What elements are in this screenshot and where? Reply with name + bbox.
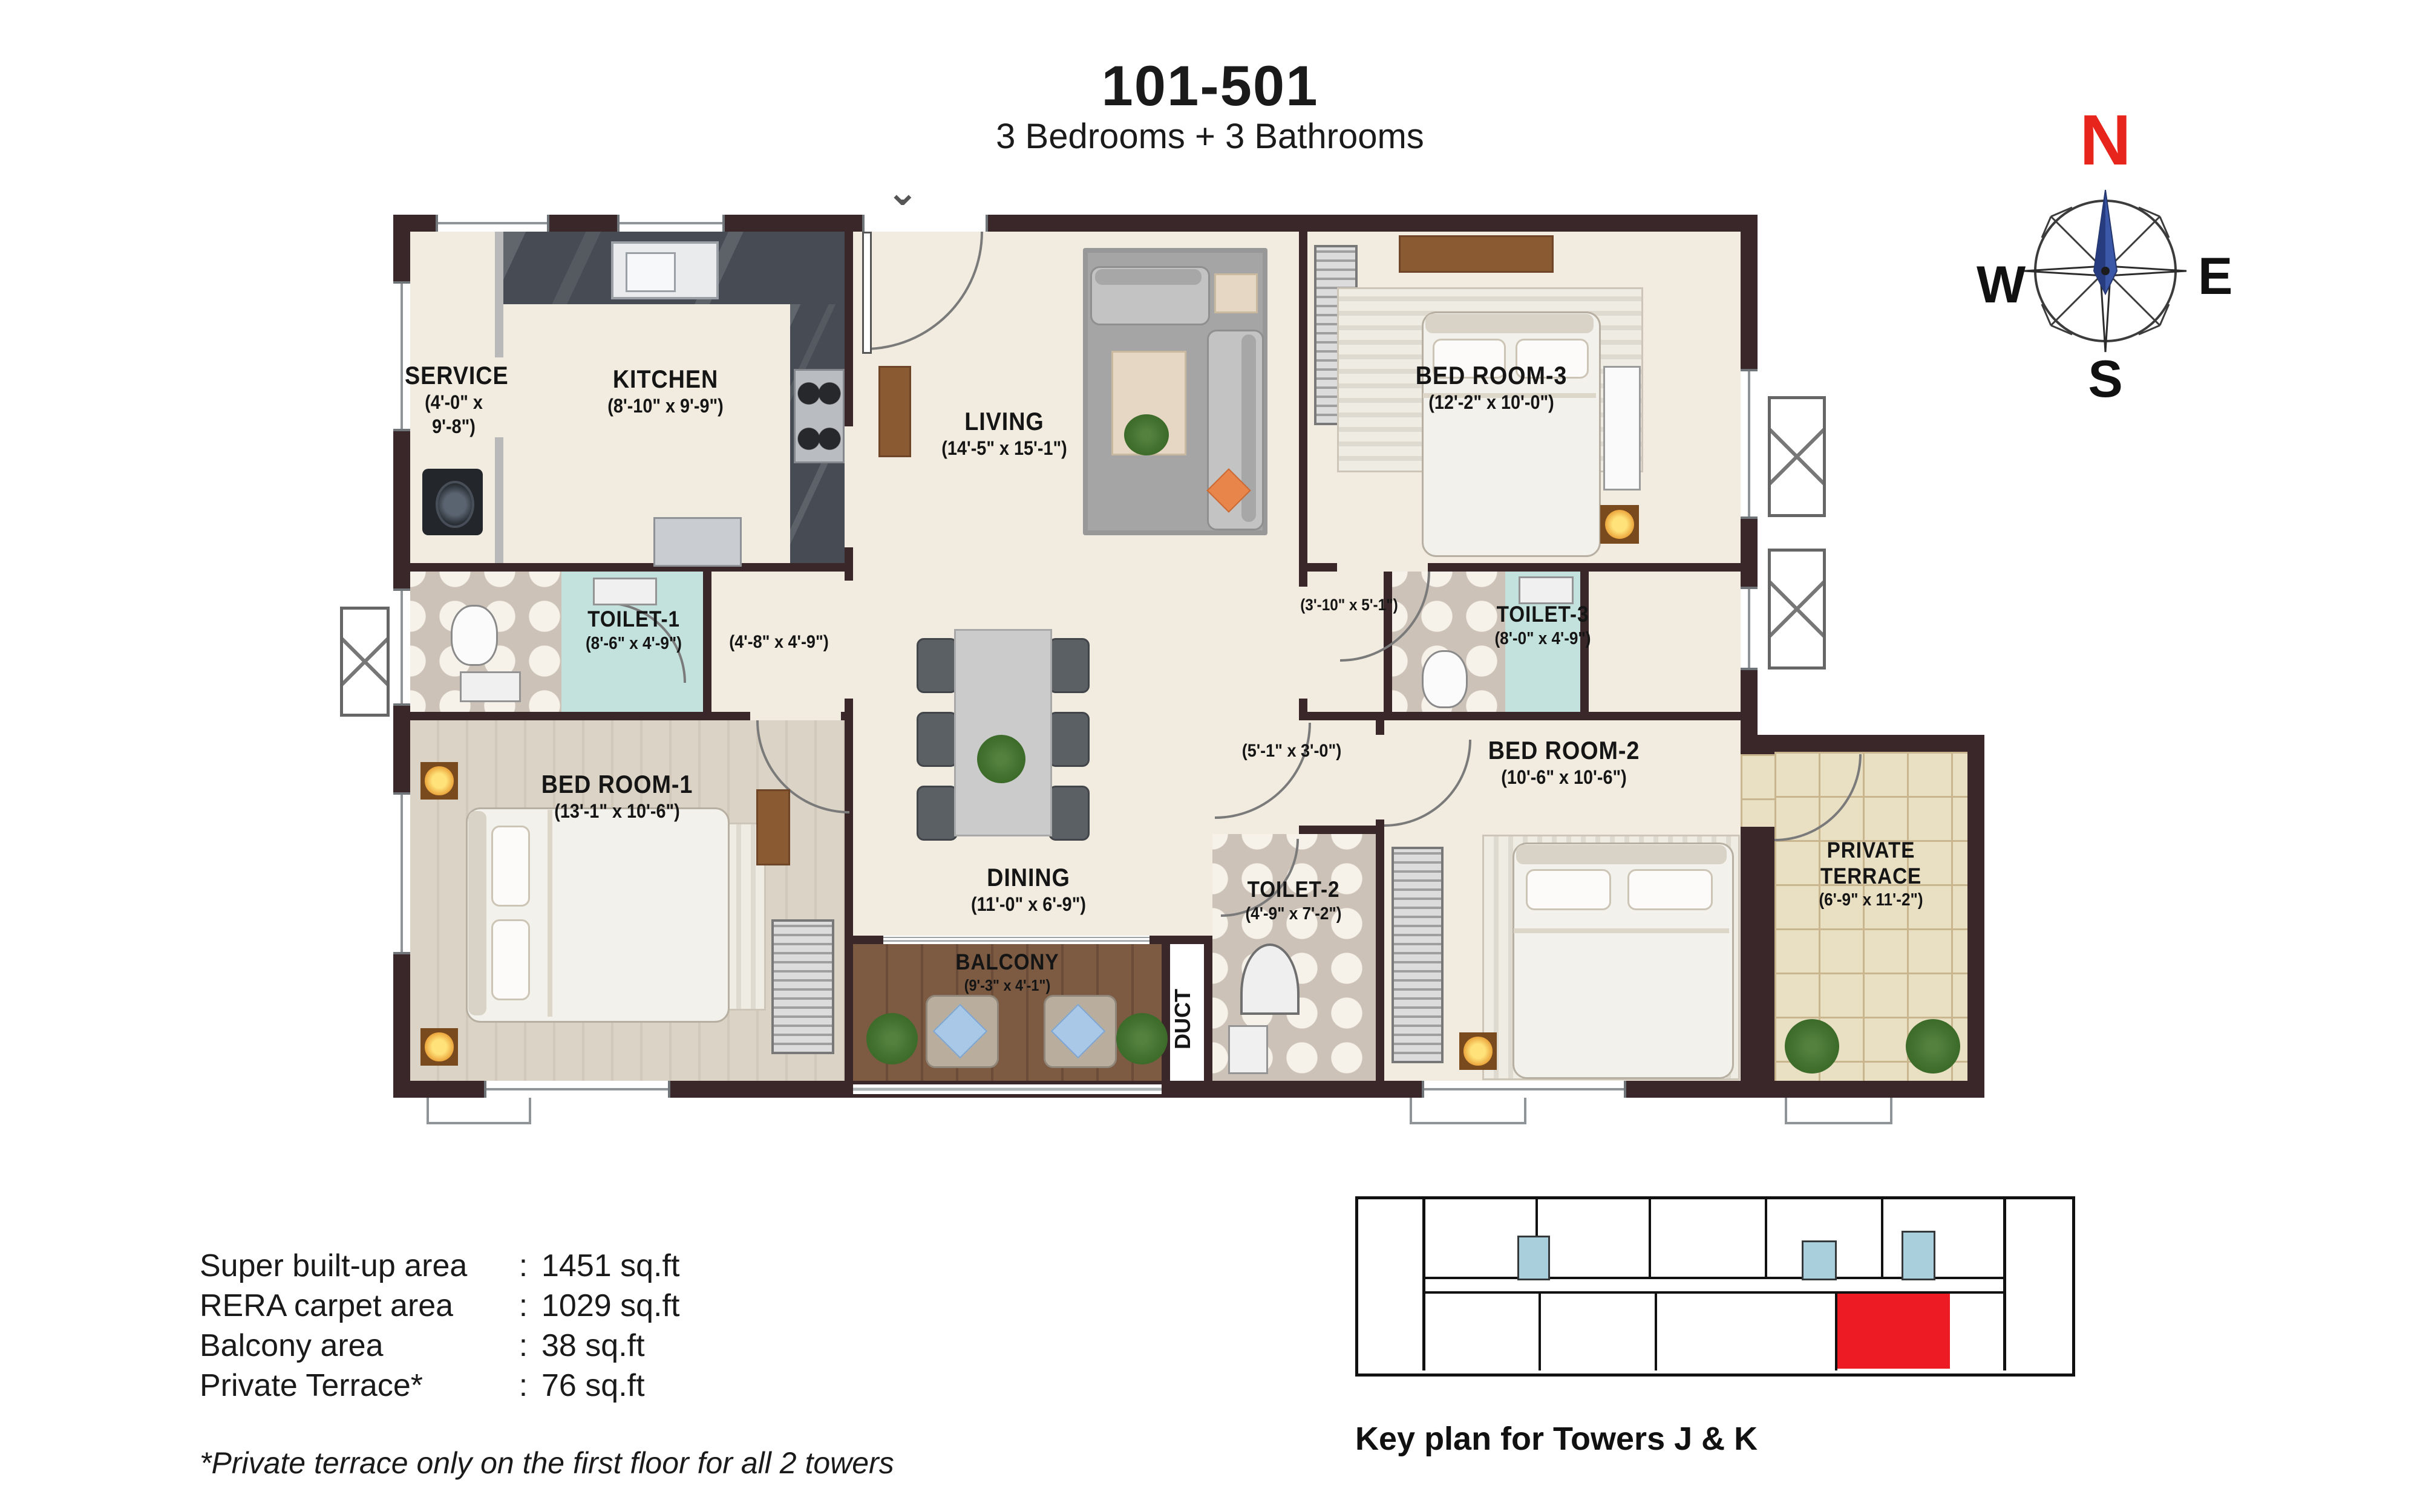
- dining-chair-5: [1048, 712, 1090, 767]
- bedroom2-door-opening: [1376, 735, 1384, 820]
- terrace-door-opening: [1741, 754, 1774, 827]
- bedroom3-wardrobe: [1603, 366, 1641, 490]
- dining-table: [954, 629, 1052, 836]
- dining-chair-6: [1048, 786, 1090, 841]
- service-label: SERVICE (4'-0" x 9'-8"): [405, 361, 503, 438]
- toilet1-wc: [451, 605, 498, 666]
- keyplan-divider: [2003, 1199, 2006, 1370]
- living-plant: [1124, 414, 1169, 455]
- keyplan-highlighted-unit: [1837, 1294, 1950, 1369]
- compass-rose-icon: N W E S: [1975, 103, 2235, 399]
- bedroom3-lamp: [1600, 505, 1639, 544]
- terrace-plant-1: [1785, 1019, 1839, 1074]
- bedroom2-blanket-fold: [1514, 928, 1729, 933]
- bedroom3-label: BED ROOM-3 (12'-2" x 10'-0"): [1382, 361, 1600, 414]
- kitchen-sink: [611, 241, 719, 299]
- keyplan-unit-divider: [1881, 1199, 1883, 1277]
- keyplan-divider: [1422, 1199, 1425, 1370]
- bedroom3-window: [1741, 369, 1758, 519]
- keyplan-unit-divider: [1765, 1199, 1767, 1277]
- toilet3-label: TOILET-3 (8'-0" x 4'-9"): [1483, 602, 1603, 650]
- dining-label: DINING (11'-0" x 6'-9"): [941, 863, 1116, 916]
- bedroom1-label: BED ROOM-1 (13'-1" x 10'-6"): [508, 770, 726, 823]
- living-label: LIVING (14'-5" x 15'-1"): [917, 407, 1091, 460]
- terrace-lobby-floor: [1589, 572, 1741, 712]
- bedroom1-headboard: [468, 811, 486, 1015]
- floor-plan: ⌄: [393, 215, 1984, 1098]
- keyplan-unit-divider: [1539, 1293, 1541, 1370]
- window-sill-1: [427, 1098, 531, 1124]
- toilet1-label: TOILET-1 (8'-6" x 4'-9"): [572, 607, 695, 654]
- keyplan-unit-divider: [1655, 1293, 1657, 1370]
- bedroom2-lamp: [1459, 1032, 1497, 1070]
- bedroom3-door-opening: [1337, 563, 1428, 572]
- bedroom1-pillow-2: [491, 919, 530, 1000]
- kitchen-window: [617, 215, 725, 232]
- right-exterior-window-box-2: [1768, 549, 1826, 670]
- area-summary: Super built-up area : 1451 sq.ft RERA ca…: [200, 1246, 986, 1406]
- window-sill-3: [1785, 1098, 1892, 1124]
- keyplan-stair-core-1: [1517, 1236, 1550, 1280]
- bedroom2-label: BED ROOM-2 (10'-6" x 10'-6"): [1455, 736, 1673, 789]
- entry-opening: [862, 215, 988, 232]
- keyplan-stair-core-3: [1902, 1231, 1935, 1280]
- dining-chair-4: [1048, 638, 1090, 693]
- left-exterior-window-box: [340, 607, 390, 717]
- terrace-label: PRIVATE TERRACE (6'-9" x 11'-2"): [1796, 838, 1946, 911]
- bedroom1-wardrobe: [771, 919, 834, 1054]
- toilet1-window: [393, 588, 410, 706]
- keyplan-caption: Key plan for Towers J & K: [1355, 1420, 1758, 1458]
- balcony-sliding-door: [883, 936, 1149, 944]
- bedroom1-lamp-2: [420, 1028, 458, 1066]
- balcony-plant-2: [1116, 1013, 1168, 1064]
- lobby-dims: (3'-10" x 5'-1"): [1292, 596, 1407, 614]
- entry-door-leaf: [862, 232, 872, 354]
- toilet3-sink: [1519, 576, 1574, 604]
- balcony-plant-1: [866, 1013, 918, 1064]
- area-row-rera-carpet: RERA carpet area : 1029 sq.ft: [200, 1286, 986, 1326]
- area-row-balcony: Balcony area : 38 sq.ft: [200, 1326, 986, 1366]
- balcony-railing: [853, 1084, 1162, 1094]
- dining-passage2-opening: [1204, 729, 1212, 818]
- bedroom1-door-opening: [750, 712, 841, 720]
- bedroom2-bottom-window: [1422, 1081, 1626, 1098]
- toilet2-label: TOILET-2 (4'-9" x 7'-2"): [1228, 877, 1359, 925]
- kitchen-hob: [794, 369, 845, 463]
- bedroom1-bottom-window: [484, 1081, 670, 1098]
- entry-arrow-icon: ⌄: [886, 169, 919, 215]
- bedroom1-side-cabinet: [756, 789, 790, 865]
- toilet1-sink: [593, 578, 657, 605]
- passage2-dims: (5'-1" x 3'-0"): [1224, 741, 1360, 761]
- area-row-private-terrace: Private Terrace* : 76 sq.ft: [200, 1366, 986, 1406]
- toilet3-window: [1741, 587, 1758, 670]
- balcony-label: BALCONY (9'-3" x 4'-1"): [937, 950, 1078, 995]
- area-row-super-builtup: Super built-up area : 1451 sq.ft: [200, 1246, 986, 1286]
- kitchen-appliance: [653, 517, 742, 567]
- bedroom2-headboard: [1516, 845, 1727, 864]
- bedroom3-headboard: [1425, 314, 1594, 333]
- terrace-plant-2: [1906, 1019, 1960, 1074]
- toilet2-sink: [1228, 1025, 1268, 1074]
- living-console-cabinet: [878, 366, 911, 457]
- washing-machine: [422, 469, 483, 535]
- dining-chair-3: [917, 786, 958, 841]
- bedroom2-wardrobe: [1391, 847, 1444, 1063]
- passage1-dims: (4'-8" x 4'-9"): [715, 632, 843, 653]
- bedroom1-lamp-1: [420, 762, 458, 800]
- right-exterior-window-box-1: [1768, 396, 1826, 517]
- living-side-table: [1214, 273, 1258, 313]
- passage1-living-opening: [845, 581, 853, 699]
- duct-label: DUCT: [1170, 965, 1204, 1074]
- service-top-window: [436, 215, 549, 232]
- bedroom2-pillow-1: [1526, 869, 1611, 910]
- compass-east-label: E: [2198, 247, 2232, 307]
- window-sill-2: [1410, 1098, 1526, 1124]
- compass-star-icon: [2015, 180, 2196, 362]
- dining-chair-1: [917, 638, 958, 693]
- sofa-horizontal-back: [1095, 269, 1202, 285]
- bedroom2-pillow-2: [1627, 869, 1713, 910]
- toilet3-wc: [1422, 650, 1468, 708]
- bedroom1-blanket-fold: [548, 810, 552, 1017]
- bedroom1-pillow-1: [491, 826, 530, 907]
- bedroom3-dresser: [1399, 235, 1554, 273]
- toilet1-vanity: [460, 671, 521, 702]
- dining-plant: [977, 735, 1025, 783]
- terrace-footnote: *Private terrace only on the first floor…: [200, 1445, 894, 1481]
- keyplan-unit-divider: [1649, 1199, 1651, 1277]
- dining-chair-2: [917, 712, 958, 767]
- kitchen-label: KITCHEN (8'-10" x 9'-9"): [584, 365, 747, 418]
- kitchen-living-opening: [845, 426, 853, 547]
- keyplan-diagram: [1355, 1196, 2075, 1377]
- keyplan-stair-core-2: [1802, 1240, 1837, 1280]
- bedroom1-window: [393, 792, 410, 954]
- compass-north-label: N: [1975, 99, 2235, 181]
